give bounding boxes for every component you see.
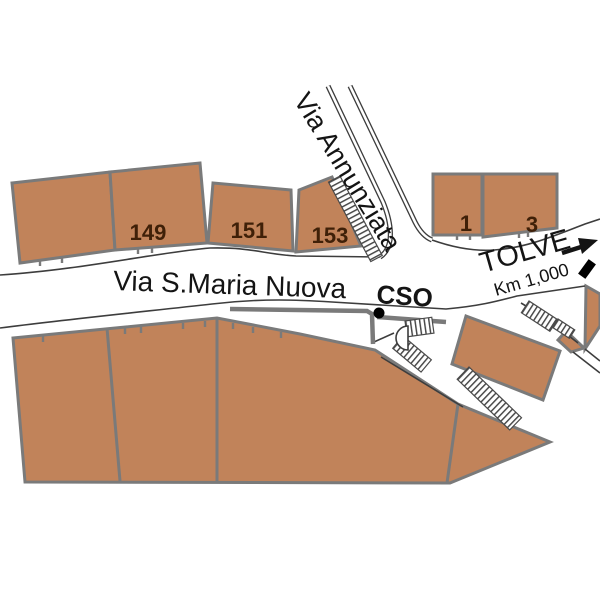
branch-edge xyxy=(585,349,600,361)
cadastral-map: Via Annunziata Via S.Maria Nuova CSO TOL… xyxy=(0,0,600,600)
km-marker xyxy=(578,259,596,279)
buildings xyxy=(12,163,600,483)
parcel-1 xyxy=(433,174,482,235)
parcel-number-153: 153 xyxy=(312,223,349,248)
parcel-number-149: 149 xyxy=(130,220,167,245)
alley-edge xyxy=(374,333,394,342)
stairs-hatch xyxy=(405,317,434,337)
stairs-center-a xyxy=(405,317,434,337)
street-label-cso: CSO xyxy=(376,279,434,313)
stairs-hatch xyxy=(521,301,557,331)
parcel-3 xyxy=(483,174,557,237)
street-label-santa-maria-nuova: Via S.Maria Nuova xyxy=(113,265,347,304)
stairs-east xyxy=(521,301,557,331)
parcel-unlabeled xyxy=(12,172,115,263)
parcel-number-1: 1 xyxy=(460,211,472,236)
parcel-number-151: 151 xyxy=(231,218,268,243)
wedge-east xyxy=(585,286,600,349)
map-canvas: Via Annunziata Via S.Maria Nuova CSO TOL… xyxy=(0,0,600,600)
branch-edge xyxy=(573,352,600,373)
parcel-number-3: 3 xyxy=(526,212,538,237)
